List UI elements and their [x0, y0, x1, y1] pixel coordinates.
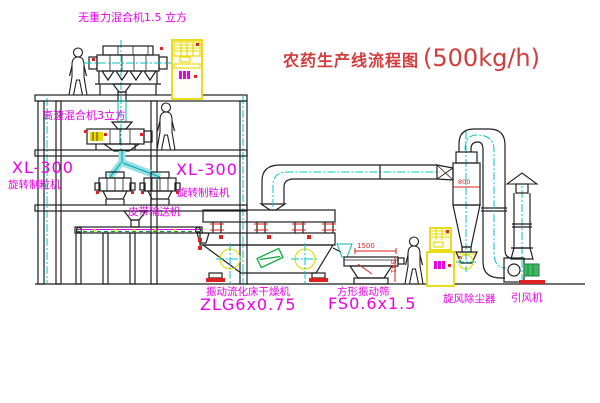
- worker-top-floor: [69, 48, 87, 95]
- control-cabinet-ground: [427, 228, 454, 286]
- label-cyclone: 旋风除尘器: [443, 294, 496, 305]
- drawing-title-text: 农药生产线流程图: [283, 47, 419, 71]
- drawing-title: 农药生产线流程图 (500kg/h): [283, 44, 540, 72]
- worker-ground: [405, 237, 423, 284]
- label-screen-model: FS0.6x1.5: [328, 296, 416, 312]
- exhaust-duct: [261, 165, 453, 210]
- label-gravity-mixer: 无重力混合机1.5 立方: [78, 12, 187, 23]
- belt-conveyor: [75, 227, 209, 284]
- label-granulator-left-name: 旋转制粒机: [8, 180, 61, 191]
- dim-screen-length: 1500: [357, 243, 375, 250]
- downcomer-duct: [459, 129, 512, 278]
- dryer-vibrator: [257, 248, 283, 267]
- process-flow-drawing: 无重力混合机1.5 立方 高速混合机3立方 XL-300 旋转制粒机 XL-30…: [0, 0, 600, 403]
- granulator-left: [95, 172, 135, 205]
- label-fan: 引风机: [511, 293, 543, 304]
- building-structure: [35, 95, 585, 284]
- label-dryer-model: ZLG6x0.75: [200, 297, 297, 313]
- dim-screen-height: 341: [389, 260, 396, 273]
- control-cabinet-top: [172, 40, 202, 99]
- label-speed-mixer: 高速混合机3立方: [42, 110, 126, 121]
- label-granulator-left-model: XL-300: [12, 160, 74, 176]
- drawing-title-capacity: (500kg/h): [423, 44, 540, 72]
- dim-cyclone-dia: 800: [458, 179, 470, 186]
- label-belt-conveyor: 皮带输送机: [128, 207, 181, 218]
- worker-second-floor: [157, 103, 175, 150]
- label-granulator-mid-name: 旋转制粒机: [177, 188, 230, 199]
- y-splitter-chute: [110, 151, 160, 177]
- high-speed-mixer: [84, 122, 152, 151]
- fluid-bed-dryer: [198, 210, 341, 284]
- gravity-free-mixer: [84, 46, 174, 101]
- dryer-nozzles: [210, 222, 336, 233]
- label-granulator-mid-model: XL-300: [176, 162, 238, 178]
- induced-draft-fan: [504, 258, 545, 284]
